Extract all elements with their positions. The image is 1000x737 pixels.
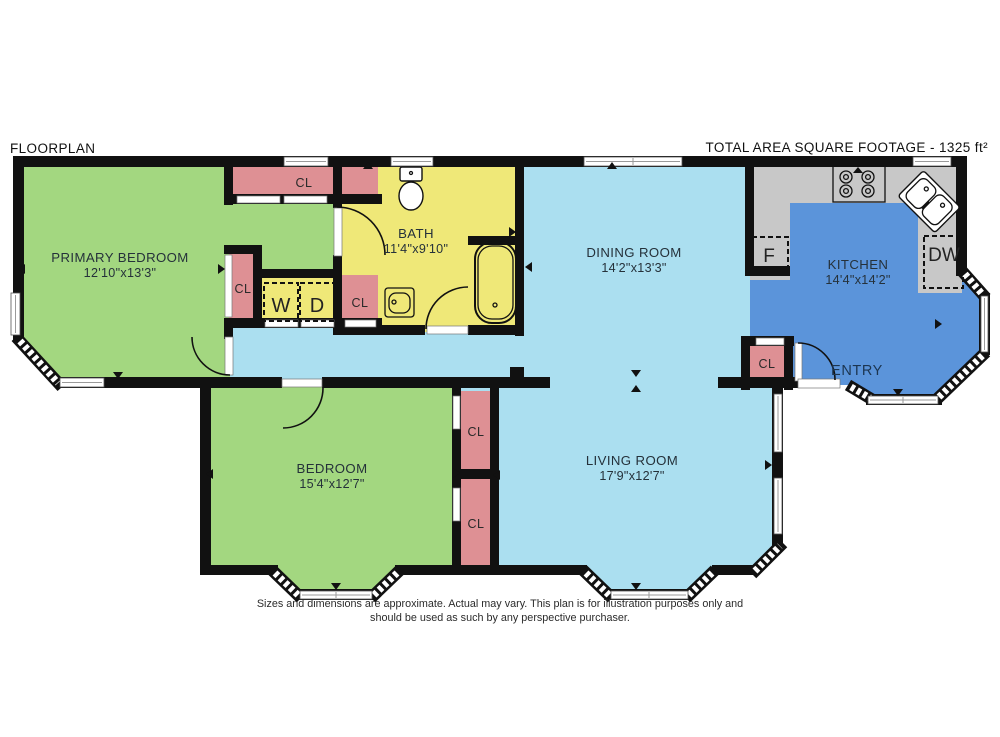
door-threshold bbox=[282, 379, 322, 387]
door-threshold bbox=[427, 326, 468, 334]
washer-label: W bbox=[272, 295, 291, 317]
door-threshold bbox=[798, 379, 840, 388]
sliding-door bbox=[237, 196, 280, 203]
wall bbox=[741, 336, 750, 390]
bath-label: BATH bbox=[398, 226, 434, 241]
primary-bedroom-dims: 12'10"x13'3" bbox=[84, 266, 157, 280]
door-leaf bbox=[795, 343, 802, 381]
wall bbox=[13, 156, 967, 167]
floorplan-page: FLOORPLAN TOTAL AREA SQUARE FOOTAGE - 13… bbox=[0, 0, 1000, 737]
wall bbox=[253, 245, 262, 327]
disclaimer-line2: should be used as such by any perspectiv… bbox=[370, 612, 630, 624]
page-title: FLOORPLAN bbox=[10, 141, 95, 156]
closet-bedroom-bottom-label: CL bbox=[468, 517, 485, 531]
total-area-label: TOTAL AREA SQUARE FOOTAGE - 1325 ft² bbox=[706, 140, 989, 155]
toilet-icon bbox=[399, 167, 423, 210]
wall bbox=[745, 156, 754, 276]
sliding-door bbox=[284, 196, 327, 203]
closet-left-label: CL bbox=[235, 282, 252, 296]
wall bbox=[333, 156, 342, 208]
entry-label: ENTRY bbox=[831, 363, 883, 379]
dining-room-dims: 14'2"x13'3" bbox=[601, 261, 666, 275]
kitchen-dims: 14'4"x14'2" bbox=[825, 273, 890, 287]
kitchen-label: KITCHEN bbox=[828, 257, 889, 272]
sliding-door bbox=[756, 338, 784, 345]
closet-entry-label: CL bbox=[759, 357, 776, 371]
sliding-door bbox=[345, 320, 376, 327]
wall bbox=[784, 336, 793, 390]
disclaimer-line1: Sizes and dimensions are approximate. Ac… bbox=[257, 598, 743, 610]
fridge-label: F bbox=[763, 246, 775, 267]
wall bbox=[200, 565, 278, 575]
dryer-label: D bbox=[310, 295, 324, 317]
floorplan-canvas: FLOORPLAN TOTAL AREA SQUARE FOOTAGE - 13… bbox=[0, 0, 1000, 737]
closet-bedroom-top-label: CL bbox=[468, 425, 485, 439]
wall bbox=[510, 367, 524, 378]
door-leaf bbox=[334, 208, 342, 256]
living-room-label: LIVING ROOM bbox=[586, 453, 678, 468]
wall bbox=[468, 236, 518, 245]
wall bbox=[257, 269, 342, 278]
sliding-door bbox=[225, 255, 232, 317]
closet-top-label: CL bbox=[296, 176, 313, 190]
wall bbox=[322, 377, 550, 388]
dining-room-label: DINING ROOM bbox=[586, 245, 681, 260]
bedroom-dims: 15'4"x12'7" bbox=[299, 477, 364, 491]
bath-dims: 11'4"x9'10" bbox=[384, 242, 448, 256]
living-room-dims: 17'9"x12'7" bbox=[599, 469, 664, 483]
bedroom-label: BEDROOM bbox=[297, 461, 368, 476]
dishwasher-label: DW bbox=[928, 245, 960, 266]
wall bbox=[452, 469, 499, 479]
wall bbox=[468, 325, 524, 335]
door-leaf bbox=[225, 337, 233, 375]
sliding-door bbox=[453, 396, 460, 429]
primary-bedroom-label: PRIMARY BEDROOM bbox=[51, 250, 188, 265]
closet-right-label: CL bbox=[352, 296, 369, 310]
sliding-door bbox=[453, 488, 460, 521]
